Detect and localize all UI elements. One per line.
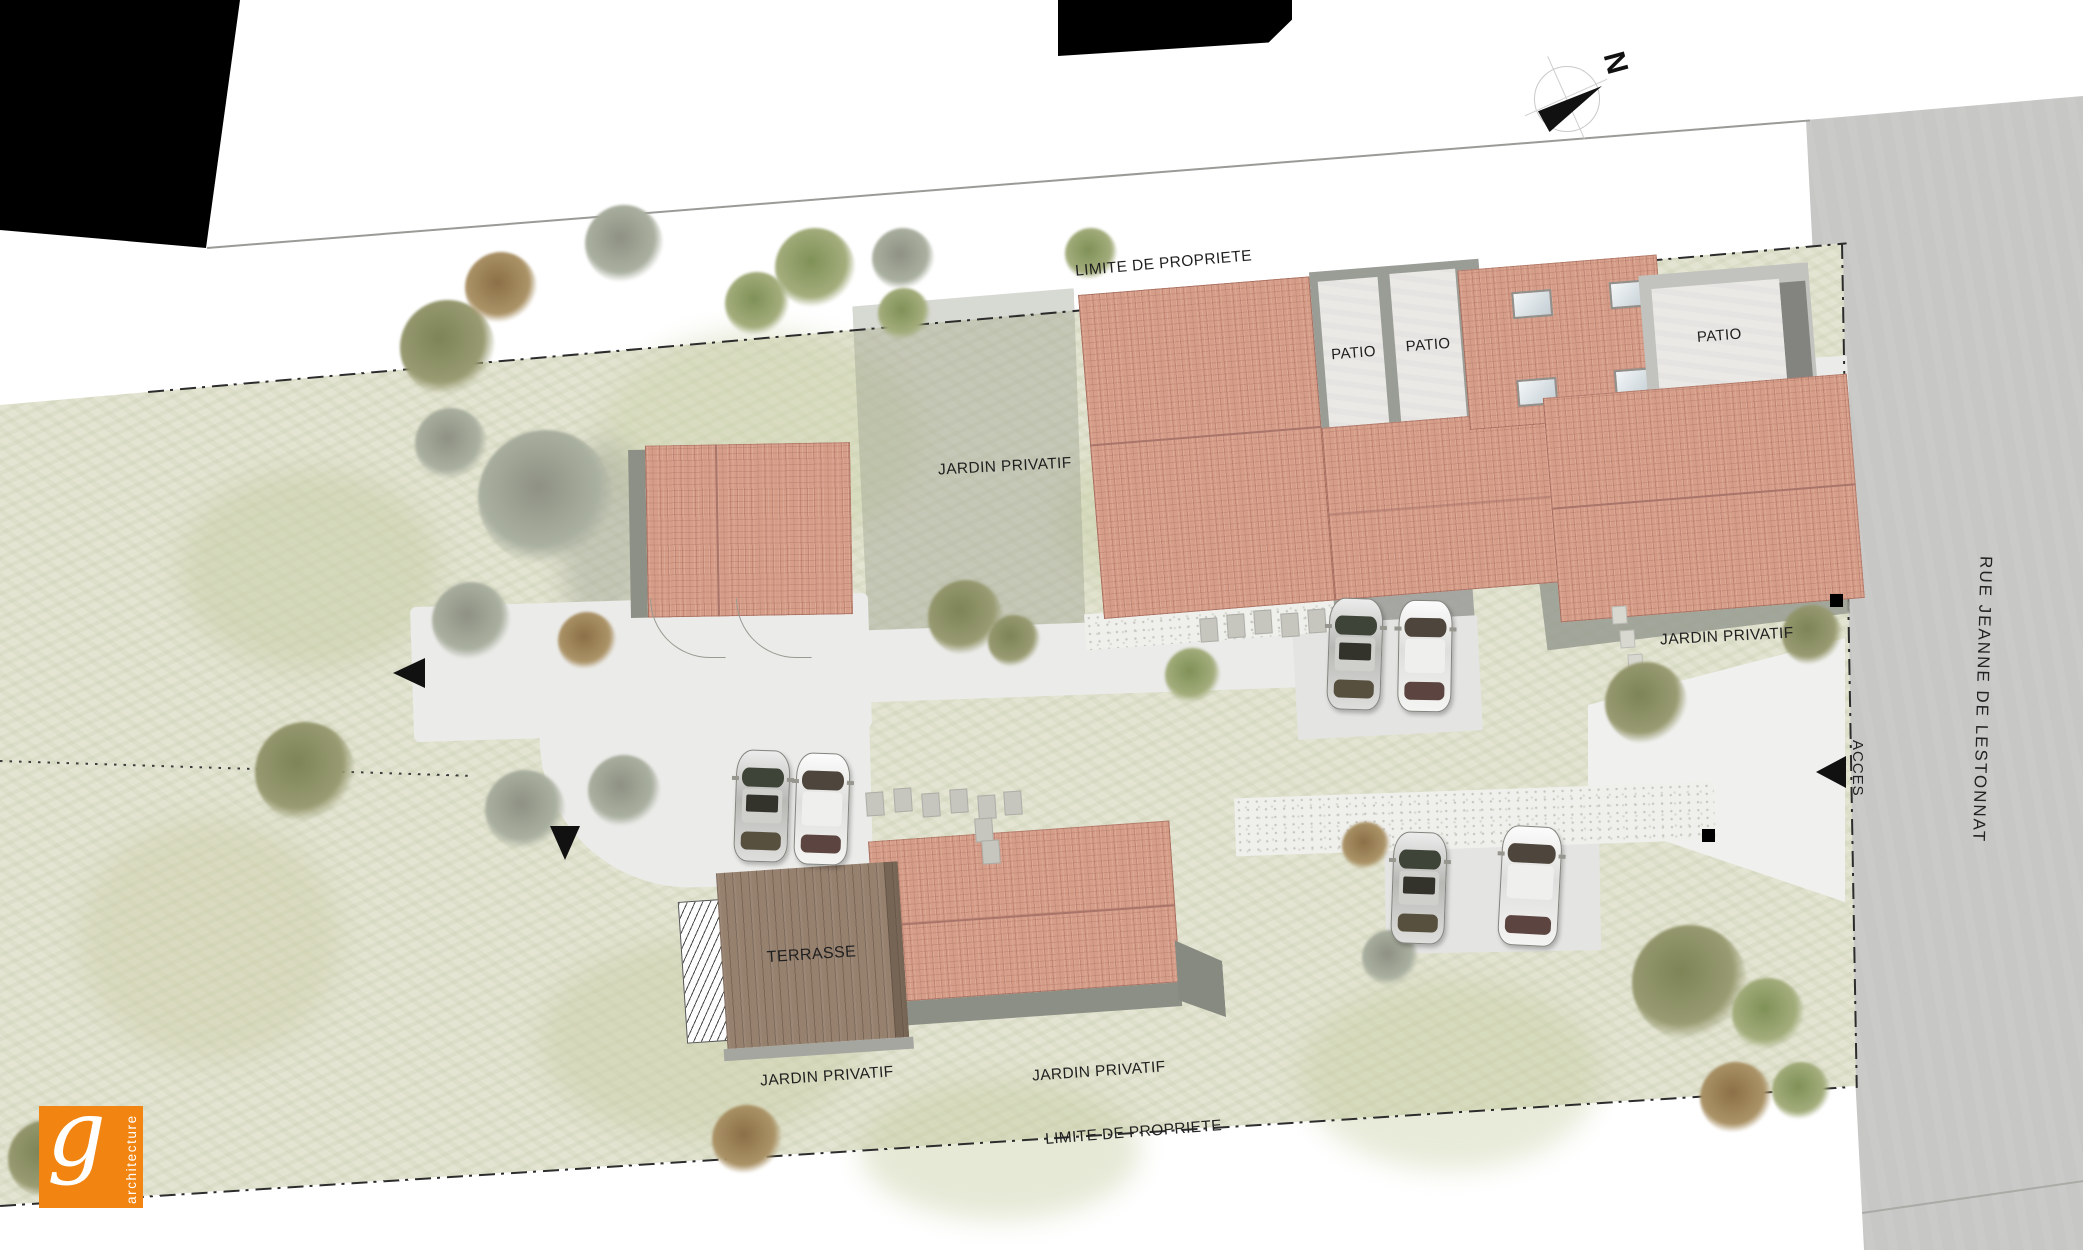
main-east-roof bbox=[1543, 374, 1865, 623]
tree bbox=[478, 430, 613, 565]
car bbox=[1326, 597, 1384, 711]
tree bbox=[988, 615, 1040, 667]
tree bbox=[585, 205, 663, 283]
building-garage bbox=[628, 442, 855, 624]
grass-patch bbox=[860, 1080, 1140, 1220]
car bbox=[793, 752, 851, 866]
stepping-stone bbox=[1307, 608, 1327, 633]
stepping-stone bbox=[1199, 617, 1219, 642]
car bbox=[1390, 831, 1448, 945]
entry-post bbox=[1702, 829, 1715, 842]
stepping-stone bbox=[1619, 629, 1635, 648]
car bbox=[1397, 600, 1453, 713]
grass-patch bbox=[1300, 980, 1600, 1170]
logo-text: architecture bbox=[124, 1110, 139, 1204]
tree bbox=[255, 722, 355, 822]
tree bbox=[712, 1105, 782, 1175]
tree bbox=[1342, 822, 1390, 870]
stepping-stone bbox=[1253, 609, 1273, 634]
tree bbox=[1165, 648, 1220, 703]
tree bbox=[415, 408, 487, 480]
roof-ridge bbox=[1090, 426, 1321, 447]
building-main: PATIO PATIO PATIO bbox=[1078, 233, 1876, 674]
tree bbox=[1772, 1062, 1830, 1120]
patio-2-label: PATIO bbox=[1405, 335, 1451, 356]
garage-roof bbox=[645, 442, 853, 618]
stepping-stone bbox=[921, 792, 941, 817]
tree bbox=[558, 612, 616, 670]
tree bbox=[1732, 978, 1804, 1050]
tree bbox=[725, 272, 789, 336]
patio-3-label: PATIO bbox=[1696, 325, 1742, 346]
adjacent-building-mask bbox=[0, 0, 240, 250]
stepping-stone bbox=[1280, 612, 1300, 637]
tree bbox=[588, 755, 660, 827]
logo-letter: g bbox=[47, 1106, 106, 1187]
logo: g architecture bbox=[39, 1106, 143, 1208]
stepping-stone bbox=[949, 788, 969, 813]
site-plan: PATIO PATIO PATIO TERRASSE bbox=[0, 0, 2083, 1250]
tree bbox=[1605, 662, 1687, 744]
stepping-stone bbox=[1003, 790, 1023, 815]
grass-patch bbox=[80, 820, 340, 1060]
terrasse-group: TERRASSE bbox=[676, 860, 929, 1075]
entry-post bbox=[1830, 594, 1843, 607]
road-edge-line bbox=[207, 119, 1810, 248]
north-label: N bbox=[1596, 48, 1634, 78]
stepping-stone bbox=[981, 839, 1001, 864]
car bbox=[733, 749, 791, 863]
stepping-stone bbox=[1226, 613, 1246, 638]
stepping-stone bbox=[977, 794, 997, 819]
stepping-stone bbox=[974, 817, 994, 842]
roof-ridge bbox=[1552, 483, 1856, 509]
garage-ridge bbox=[715, 444, 720, 616]
tree bbox=[1632, 925, 1747, 1040]
tree bbox=[872, 228, 934, 290]
tree bbox=[465, 252, 537, 324]
tree bbox=[432, 582, 510, 660]
stepping-stone bbox=[1611, 605, 1627, 624]
tree bbox=[1700, 1062, 1772, 1134]
adjacent-building-mask bbox=[1058, 0, 1292, 56]
tree bbox=[878, 288, 930, 340]
acces-label: ACCES bbox=[1849, 740, 1866, 810]
main-west-roof bbox=[1078, 276, 1335, 619]
stepping-stone bbox=[893, 787, 913, 812]
grass-patch bbox=[180, 470, 440, 670]
tree bbox=[485, 770, 565, 850]
car bbox=[1497, 825, 1563, 948]
patio-1-label: PATIO bbox=[1331, 343, 1377, 364]
stepping-stone bbox=[865, 791, 885, 816]
skylight bbox=[1511, 289, 1553, 319]
